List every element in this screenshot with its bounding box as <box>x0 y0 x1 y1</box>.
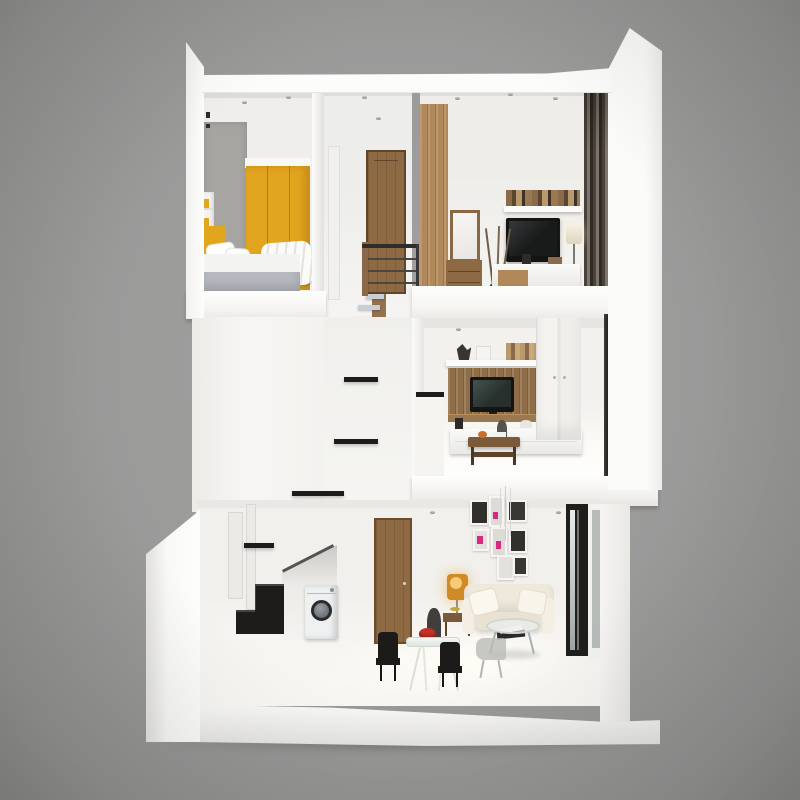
stairwell-flank-wall <box>192 317 324 512</box>
left-parapet-wall <box>186 42 204 318</box>
tv-screen <box>473 380 511 407</box>
wood-wardrobe-panel <box>420 104 448 296</box>
ceiling-spotlight <box>508 93 513 96</box>
bed-mattress <box>200 254 300 274</box>
ceiling-spotlight <box>556 511 561 514</box>
washer-knob <box>330 588 334 592</box>
door-handle <box>403 582 406 585</box>
floor-slab <box>186 291 326 319</box>
lamp-glow <box>450 577 462 589</box>
pendant-light-rod <box>505 486 506 541</box>
ceiling-spotlight <box>456 328 461 331</box>
chair-leg <box>442 673 444 687</box>
dark-curtain <box>584 90 610 294</box>
picture-frame <box>489 496 504 527</box>
pink-artwork <box>477 536 483 544</box>
sideboard-wood-unit <box>498 270 528 286</box>
dresser-mirror <box>450 210 480 262</box>
gold-dish <box>450 607 460 611</box>
floor-slab <box>412 286 612 320</box>
book-stack <box>548 257 562 264</box>
hall-side-door-frame <box>328 146 340 300</box>
lounge-coffee-table-top <box>468 437 520 447</box>
book-row <box>506 190 580 206</box>
right-tower-wall <box>608 28 662 490</box>
washer-panel-line <box>307 593 336 594</box>
stairwell-mid <box>324 317 412 507</box>
wall-recessed-panel <box>228 512 243 599</box>
lounge-floating-shelf <box>446 360 538 366</box>
railing-newel-post <box>362 242 368 296</box>
ceiling-spotlight <box>430 511 435 514</box>
bedroom-wall-decor <box>206 124 210 128</box>
dollhouse-render <box>0 0 800 800</box>
pink-artwork <box>496 541 501 549</box>
floating-shelf <box>504 206 582 212</box>
railing-wire <box>368 270 418 272</box>
entry-door-glass <box>570 510 575 650</box>
half-landing-face <box>416 397 444 477</box>
dining-chair-seat <box>438 666 462 673</box>
stair-nosing <box>292 491 344 496</box>
stair-tread <box>358 305 380 310</box>
step-highlight <box>255 584 284 586</box>
front-return-wall <box>146 510 200 742</box>
step-highlight <box>236 610 255 612</box>
lower-right-wall <box>600 504 630 722</box>
ceiling-spotlight <box>455 97 460 100</box>
table-decor-orange <box>478 431 487 438</box>
ceiling-spotlight <box>286 96 291 99</box>
floor-lamp-shade <box>566 224 582 244</box>
chair-leg <box>394 665 396 681</box>
speaker-box <box>522 254 531 264</box>
pendant-light-rod <box>510 488 511 536</box>
lounge-speaker <box>455 418 463 429</box>
glass-table-top <box>486 618 540 634</box>
dresser-drawer-line <box>448 282 480 283</box>
sofa-pillow <box>516 588 548 616</box>
railing-wire <box>368 282 418 284</box>
ceiling-spotlight <box>242 101 247 104</box>
picture-frame <box>509 529 527 553</box>
bedroom-wall-decor <box>206 112 210 118</box>
washing-machine <box>305 585 338 639</box>
pendant-light-rod <box>500 488 501 528</box>
stair-nosing <box>344 377 378 382</box>
wall-recessed-panel <box>246 504 256 610</box>
side-table-leg <box>445 622 447 636</box>
decor-bird <box>520 420 532 428</box>
ceiling-spotlight <box>553 97 558 100</box>
picture-frame <box>470 500 489 525</box>
entry-door-glass <box>577 510 579 650</box>
roof-slab <box>202 68 612 93</box>
door-panel-line <box>374 160 398 161</box>
ground-wood-door <box>374 518 412 644</box>
dining-chair-seat <box>376 658 400 665</box>
picture-frame <box>513 556 528 576</box>
gray-chair-shell <box>476 638 506 660</box>
floor-glow <box>330 622 590 702</box>
railing-wire <box>368 258 418 260</box>
dresser-drawer-line <box>448 271 480 272</box>
lounge-book-row <box>506 343 536 361</box>
side-panel-glass <box>592 510 600 648</box>
dining-chair-black <box>440 642 460 668</box>
cabinet-handle <box>553 376 556 379</box>
tv-reflection <box>509 221 557 256</box>
door-grain <box>376 520 410 642</box>
stair-nosing <box>334 439 378 444</box>
chair-leg <box>456 673 458 687</box>
table-books-white <box>492 432 506 437</box>
cabinet-handle <box>563 376 566 379</box>
lounge-tv <box>470 377 514 412</box>
picture-frame <box>473 529 489 551</box>
wall-tv <box>506 218 560 262</box>
ceiling-spotlight <box>362 96 367 99</box>
washer-door <box>311 600 332 621</box>
dark-entry-door <box>566 504 588 656</box>
coffee-table-shelf <box>474 452 514 457</box>
ceiling-spotlight <box>376 117 381 120</box>
stair-nosing <box>244 543 274 548</box>
wardrobe-planks <box>420 104 448 296</box>
chair-leg <box>380 665 382 681</box>
picture-frame <box>497 555 514 580</box>
tall-cabinets <box>536 318 581 440</box>
pink-artwork <box>493 512 498 519</box>
stair-tread <box>366 294 384 299</box>
dining-chair-black <box>378 632 398 660</box>
partition-wall <box>312 82 324 294</box>
hall-wood-door <box>366 150 406 294</box>
railing-top-rail <box>362 244 419 248</box>
